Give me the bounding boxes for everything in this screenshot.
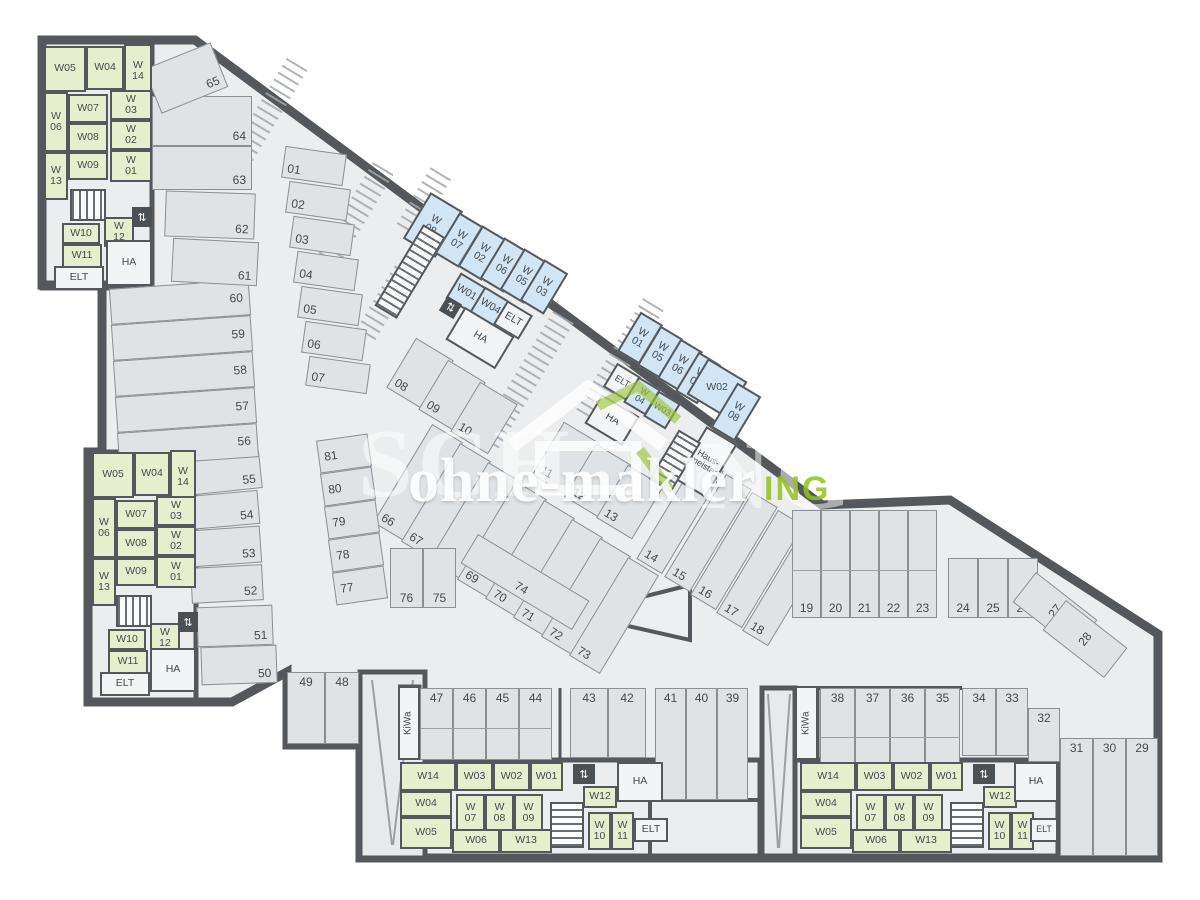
room-label: W04 bbox=[815, 798, 837, 809]
parking-spot-label: 23 bbox=[916, 602, 929, 614]
room-ELT: ELT bbox=[1030, 818, 1058, 842]
room-W10: W 10 bbox=[588, 812, 611, 850]
room-label: HA bbox=[122, 257, 137, 268]
parking-spot-label: 10 bbox=[457, 420, 475, 437]
room-W13: W 13 bbox=[92, 558, 116, 606]
parking-spot-label: 43 bbox=[582, 692, 595, 704]
parking-spot-label: 51 bbox=[254, 629, 268, 641]
room-W02: W02 bbox=[893, 762, 930, 791]
parking-spot-label: 19 bbox=[800, 602, 813, 614]
ramp-einfahrt bbox=[762, 688, 795, 856]
parking-spot-label: 03 bbox=[295, 232, 310, 246]
room-label: W 02 bbox=[170, 530, 182, 552]
parking-spot-label: 12 bbox=[570, 486, 588, 503]
room-label: W 06 bbox=[98, 517, 110, 539]
parking-spot-label: 11 bbox=[538, 464, 555, 481]
parking-spot-label: 63 bbox=[233, 174, 246, 186]
parking-spot-label: 79 bbox=[331, 514, 346, 528]
parking-spot-label: 40 bbox=[695, 692, 708, 704]
room-W14: W14 bbox=[800, 762, 856, 791]
parking-spot-label: 55 bbox=[242, 473, 257, 486]
stairs-icon bbox=[550, 802, 584, 848]
room-label: W 10 bbox=[594, 820, 606, 842]
parking-spot-22: 22 bbox=[879, 510, 908, 618]
room-W06: W06 bbox=[452, 829, 500, 853]
room-W10: W10 bbox=[108, 629, 146, 650]
parking-spot-label: 22 bbox=[887, 602, 900, 614]
parking-spot-label: 64 bbox=[233, 130, 246, 142]
room-W13: W13 bbox=[900, 829, 952, 853]
room-W11: W 11 bbox=[611, 812, 634, 850]
room-label: W04 bbox=[94, 62, 116, 73]
room-W03: W 03 bbox=[110, 90, 152, 120]
room-W06: W 06 bbox=[92, 498, 116, 558]
elevator-icon: ⇅ bbox=[178, 612, 198, 632]
room-W03: W03 bbox=[856, 762, 893, 791]
parking-spot-50: 50 bbox=[200, 645, 277, 686]
parking-spot-label: 33 bbox=[1005, 692, 1018, 704]
room-label: W 13 bbox=[98, 571, 110, 593]
parking-spot-29: 29 bbox=[1126, 738, 1158, 856]
parking-spot-label: 05 bbox=[303, 302, 318, 316]
parking-spot-24: 24 bbox=[948, 558, 978, 618]
parking-spot-21: 21 bbox=[850, 510, 879, 618]
room-label: W01 bbox=[536, 771, 558, 782]
room-label: W06 bbox=[465, 835, 487, 846]
parking-spot-30: 30 bbox=[1093, 738, 1126, 856]
room-label: HA bbox=[166, 664, 181, 675]
room-W08: W 08 bbox=[485, 794, 514, 832]
room-label: W 13 bbox=[50, 165, 62, 187]
parking-spot-label: 71 bbox=[519, 606, 537, 623]
parking-spot-label: 07 bbox=[311, 370, 326, 384]
room-HA: HA bbox=[1014, 762, 1058, 802]
room-W01: W 01 bbox=[156, 556, 196, 588]
parking-spot-label: 75 bbox=[433, 592, 446, 604]
parking-spot-label: 53 bbox=[242, 547, 256, 560]
room-label: W 01 bbox=[125, 155, 137, 177]
room-W01: W01 bbox=[930, 762, 963, 791]
parking-spot-19: 19 bbox=[792, 510, 821, 618]
parking-spot-label: 62 bbox=[235, 223, 249, 235]
room-label: W04 bbox=[415, 798, 437, 809]
parking-spot-46: 46 bbox=[453, 688, 486, 760]
room-label: W11 bbox=[118, 656, 139, 667]
room-W09: W 09 bbox=[514, 794, 543, 832]
parking-spot-label: 14 bbox=[643, 548, 661, 565]
room-label: W13 bbox=[915, 835, 937, 846]
parking-spot-label: 20 bbox=[829, 602, 842, 614]
room-W07: W07 bbox=[116, 500, 156, 529]
room-W13: W 13 bbox=[44, 152, 68, 200]
parking-spot-label: 35 bbox=[936, 692, 949, 704]
parking-spot-label: 78 bbox=[335, 547, 350, 561]
room-label: W 08 bbox=[725, 400, 746, 425]
room-label: W12 bbox=[589, 791, 611, 802]
room-label: ELT bbox=[613, 374, 631, 390]
room-label: W 08 bbox=[894, 802, 906, 824]
room-label: W05 bbox=[54, 63, 76, 74]
room-W11: W11 bbox=[108, 650, 148, 674]
room-KiWa: KiWa bbox=[795, 686, 818, 760]
room-label: W07 bbox=[125, 509, 147, 520]
parking-spot-label: 02 bbox=[291, 197, 306, 211]
elevator-icon: ⇅ bbox=[132, 207, 152, 227]
parking-spot-43: 43 bbox=[570, 688, 608, 758]
room-label: W 09 bbox=[523, 802, 535, 824]
room-W07: W 07 bbox=[856, 794, 885, 832]
parking-spot-label: 73 bbox=[575, 644, 593, 661]
parking-spot-20: 20 bbox=[821, 510, 850, 618]
room-label: W 14 bbox=[132, 60, 144, 82]
parking-spot-label: 72 bbox=[547, 625, 565, 642]
room-label: W05 bbox=[102, 469, 124, 480]
room-label: W 04 bbox=[633, 385, 651, 406]
room-W05: W05 bbox=[44, 46, 86, 92]
parking-spot-label: 60 bbox=[229, 292, 243, 305]
parking-spot-label: 58 bbox=[233, 364, 247, 377]
room-label: W14 bbox=[417, 771, 439, 782]
parking-spot-label: 24 bbox=[956, 602, 969, 614]
parking-spot-label: 67 bbox=[407, 530, 425, 547]
parking-spot-label: 21 bbox=[858, 602, 871, 614]
parking-spot-label: 36 bbox=[901, 692, 914, 704]
room-ELT: ELT bbox=[634, 818, 668, 842]
parking-spot-label: 50 bbox=[258, 667, 272, 679]
room-label: ELT bbox=[1036, 825, 1052, 834]
parking-spot-52: 52 bbox=[190, 564, 264, 604]
parking-spot-62: 62 bbox=[164, 190, 256, 239]
parking-spot-label: 77 bbox=[339, 580, 354, 594]
parking-spot-label: 52 bbox=[244, 584, 258, 597]
room-label: ELT bbox=[116, 678, 134, 689]
parking-spot-label: 74 bbox=[513, 579, 531, 596]
room-label: W05 bbox=[815, 827, 837, 838]
room-label: W 08 bbox=[494, 802, 506, 824]
parking-spot-34: 34 bbox=[962, 688, 996, 756]
parking-spot-label: 30 bbox=[1103, 742, 1116, 754]
parking-spot-61: 61 bbox=[171, 238, 259, 286]
room-ELT: ELT bbox=[54, 266, 104, 290]
room-label: W04 bbox=[141, 468, 163, 479]
parking-spot-label: 38 bbox=[831, 692, 844, 704]
room-label: W07 bbox=[77, 103, 99, 114]
elevator-icon: ⇅ bbox=[573, 764, 595, 784]
room-label: W 12 bbox=[159, 627, 171, 649]
room-label: ELT bbox=[70, 272, 88, 283]
parking-spot-label: 49 bbox=[299, 676, 312, 688]
room-W07: W07 bbox=[68, 94, 108, 123]
room-label: W10 bbox=[116, 634, 138, 645]
room-label: ELT bbox=[502, 311, 524, 330]
room-label: W02 bbox=[901, 771, 923, 782]
room-W09: W09 bbox=[116, 558, 156, 586]
room-label: W 07 bbox=[448, 228, 469, 253]
room-label: KiWa bbox=[404, 711, 415, 735]
room-W02: W 02 bbox=[110, 120, 152, 150]
parking-spot-label: 47 bbox=[430, 692, 443, 704]
room-W02: W 02 bbox=[156, 526, 196, 556]
room-label: W 03 bbox=[125, 94, 137, 116]
room-label: W14 bbox=[817, 771, 839, 782]
parking-spot-76: 76 bbox=[390, 548, 423, 608]
room-label: W02 bbox=[706, 382, 728, 393]
room-W05: W05 bbox=[800, 817, 852, 849]
room-label: W01 bbox=[454, 283, 478, 304]
room-W09: W09 bbox=[68, 152, 108, 180]
parking-spot-label: 61 bbox=[238, 269, 252, 282]
room-label: W03 bbox=[864, 771, 886, 782]
room-KiWa: KiWa bbox=[398, 686, 420, 760]
parking-spot-33: 33 bbox=[996, 688, 1028, 756]
room-W04: W04 bbox=[134, 452, 170, 496]
room-label: W02 bbox=[501, 771, 523, 782]
room-label: W01 bbox=[936, 771, 958, 782]
parking-spot-25: 25 bbox=[978, 558, 1008, 618]
room-label: W 09 bbox=[923, 802, 935, 824]
parking-spot-40: 40 bbox=[686, 688, 717, 800]
room-HA: HA bbox=[150, 648, 196, 692]
parking-spot-42: 42 bbox=[608, 688, 646, 758]
room-label: W 06 bbox=[50, 111, 62, 133]
parking-spot-63: 63 bbox=[152, 146, 252, 190]
room-label: W 03 bbox=[533, 275, 554, 300]
parking-spot-label: 76 bbox=[400, 592, 413, 604]
parking-spot-label: 13 bbox=[602, 507, 620, 524]
parking-spot-45: 45 bbox=[486, 688, 519, 760]
parking-spot-32: 32 bbox=[1028, 708, 1060, 762]
room-label: KiWa bbox=[801, 711, 812, 735]
parking-spot-label: 42 bbox=[620, 692, 633, 704]
parking-spot-54: 54 bbox=[186, 490, 261, 530]
room-W02: W02 bbox=[493, 762, 530, 791]
room-label: W 03 bbox=[170, 500, 182, 522]
room-W04: W04 bbox=[800, 791, 852, 817]
parking-spot-label: 41 bbox=[664, 692, 677, 704]
room-label: W 14 bbox=[177, 466, 189, 488]
parking-spot-label: 39 bbox=[726, 692, 739, 704]
parking-spot-label: 17 bbox=[723, 602, 741, 619]
parking-spot-label: 28 bbox=[1076, 630, 1094, 648]
room-label: W09 bbox=[77, 160, 99, 171]
room-HA: HA bbox=[617, 762, 663, 802]
stairs-icon bbox=[116, 595, 152, 627]
parking-spot-label: 37 bbox=[866, 692, 879, 704]
room-W10: W10 bbox=[62, 223, 100, 244]
room-W01: W 01 bbox=[110, 150, 152, 182]
parking-spot-label: 80 bbox=[327, 481, 342, 495]
room-label: W08 bbox=[77, 132, 99, 143]
room-label: ELT bbox=[642, 824, 660, 835]
room-W12: W12 bbox=[983, 786, 1017, 808]
room-label: HA bbox=[603, 412, 621, 429]
parking-spot-label: 46 bbox=[463, 692, 476, 704]
room-W09: W 09 bbox=[914, 794, 943, 832]
room-W01: W01 bbox=[530, 762, 563, 791]
room-label: W 01 bbox=[170, 561, 182, 583]
room-W03: W03 bbox=[456, 762, 493, 791]
room-label: W 11 bbox=[1017, 820, 1028, 842]
room-label: W 11 bbox=[617, 820, 628, 842]
parking-spot-47: 47 bbox=[420, 688, 453, 760]
room-W03: W 03 bbox=[156, 496, 196, 526]
parking-spot-label: 31 bbox=[1070, 742, 1083, 754]
room-label: HA bbox=[633, 776, 648, 787]
parking-spot-label: 16 bbox=[697, 584, 715, 601]
room-W08: W 08 bbox=[885, 794, 914, 832]
parking-spot-44: 44 bbox=[519, 688, 552, 760]
parking-spot-53: 53 bbox=[188, 526, 262, 568]
stairs-icon bbox=[70, 189, 106, 221]
parking-spot-51: 51 bbox=[196, 605, 273, 648]
room-W04: W04 bbox=[86, 46, 124, 90]
parking-spot-label: 01 bbox=[287, 162, 302, 176]
parking-spot-label: 09 bbox=[425, 398, 443, 415]
room-label: HA bbox=[1029, 776, 1044, 787]
parking-spot-label: 56 bbox=[237, 435, 251, 448]
parking-spot-label: 25 bbox=[986, 602, 999, 614]
room-W11: W11 bbox=[62, 244, 102, 268]
room-W07: W 07 bbox=[456, 794, 485, 832]
room-W06: W 06 bbox=[44, 92, 68, 152]
parking-spot-label: 06 bbox=[307, 337, 322, 351]
parking-spot-label: 44 bbox=[529, 692, 542, 704]
parking-spot-label: 57 bbox=[235, 400, 249, 413]
parking-spot-label: 54 bbox=[240, 508, 254, 521]
room-label: W11 bbox=[72, 250, 93, 261]
parking-spot-label: 66 bbox=[379, 511, 397, 528]
parking-spot-label: 18 bbox=[749, 620, 767, 637]
parking-spot-23: 23 bbox=[908, 510, 937, 618]
parking-spot-label: 08 bbox=[393, 376, 411, 393]
room-W08: W08 bbox=[116, 529, 156, 558]
parking-spot-label: 65 bbox=[204, 74, 221, 90]
room-label: W05 bbox=[415, 827, 437, 838]
room-W08: W08 bbox=[68, 123, 108, 152]
parking-spot-49: 49 bbox=[287, 672, 325, 744]
room-label: W13 bbox=[515, 835, 537, 846]
room-label: W03 bbox=[652, 401, 673, 419]
room-label: W12 bbox=[989, 791, 1011, 802]
parking-spot-label: 59 bbox=[231, 328, 245, 341]
room-label: W 10 bbox=[994, 820, 1006, 842]
room-W14: W14 bbox=[400, 762, 456, 791]
room-label: W03 bbox=[464, 771, 486, 782]
room-W05: W05 bbox=[92, 452, 134, 498]
room-W13: W13 bbox=[500, 829, 552, 853]
room-label: W 07 bbox=[865, 802, 877, 824]
parking-spot-48: 48 bbox=[325, 672, 359, 744]
room-W06: W06 bbox=[852, 829, 900, 853]
parking-spot-label: 81 bbox=[323, 448, 338, 462]
parking-spot-label: 15 bbox=[671, 566, 689, 583]
parking-spot-31: 31 bbox=[1060, 738, 1093, 856]
room-label: W09 bbox=[125, 566, 147, 577]
room-label: W 07 bbox=[465, 802, 477, 824]
room-ELT: ELT bbox=[100, 672, 150, 696]
floor-plan: SCH NG ohne-makler ING 01020304050607080… bbox=[0, 0, 1200, 900]
parking-spot-75: 75 bbox=[423, 548, 456, 608]
parking-spot-label: 48 bbox=[335, 676, 348, 688]
stairs-icon bbox=[950, 802, 984, 848]
room-W10: W 10 bbox=[988, 812, 1011, 850]
room-W12: W12 bbox=[583, 786, 617, 808]
elevator-icon: ⇅ bbox=[973, 764, 995, 784]
room-HA: HA bbox=[106, 240, 152, 286]
room-W05: W05 bbox=[400, 817, 452, 849]
parking-spot-label: 04 bbox=[299, 267, 314, 281]
room-label: W10 bbox=[70, 228, 92, 239]
parking-spot-39: 39 bbox=[717, 688, 748, 800]
room-W04: W04 bbox=[400, 791, 452, 817]
room-label: HA bbox=[471, 330, 489, 347]
parking-spot-label: 45 bbox=[496, 692, 509, 704]
parking-spot-label: 34 bbox=[972, 692, 985, 704]
room-label: W08 bbox=[125, 538, 147, 549]
room-label: W06 bbox=[865, 835, 887, 846]
parking-spot-label: 32 bbox=[1037, 712, 1050, 724]
parking-spot-label: 29 bbox=[1135, 742, 1148, 754]
room-label: W 02 bbox=[125, 124, 137, 146]
